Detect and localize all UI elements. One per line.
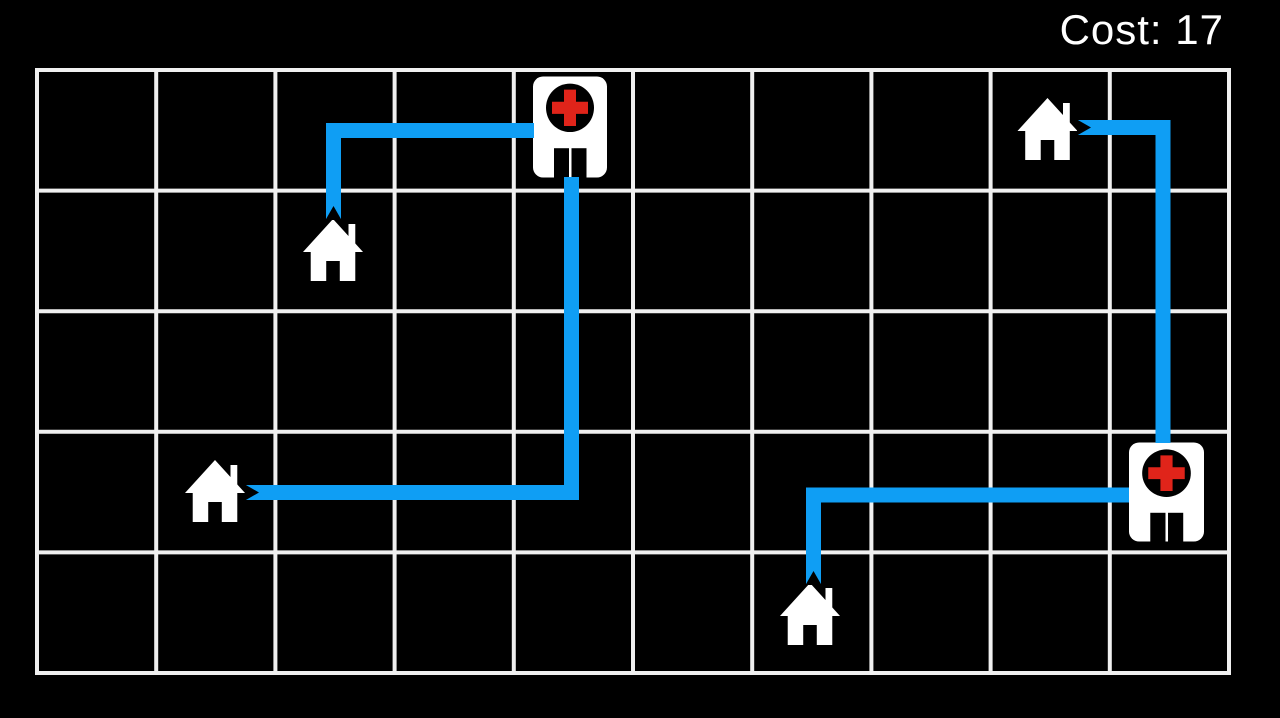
game-board: Cost: 17	[0, 0, 1280, 718]
route-hospital-top-to-house-upper-left[interactable]	[334, 131, 535, 221]
hospital-door-left	[1150, 513, 1165, 542]
house-icon[interactable]	[303, 219, 363, 281]
house-door	[326, 261, 340, 281]
hospital-icon[interactable]	[533, 77, 607, 178]
cost-label: Cost: 17	[1060, 0, 1224, 60]
house-icon[interactable]	[185, 460, 245, 522]
hospital-icon[interactable]	[1129, 443, 1204, 542]
hospital-door-right	[1168, 513, 1183, 542]
house-door	[803, 625, 817, 645]
house-icon[interactable]	[780, 583, 840, 645]
hospital-door-right	[572, 148, 587, 177]
route-house-top-right-to-hospital-right[interactable]	[1077, 128, 1163, 444]
hospital-door-left	[554, 148, 569, 177]
route-hospital-top-to-house-mid-left[interactable]	[245, 177, 572, 493]
grid-canvas[interactable]	[0, 0, 1280, 718]
house-door	[1041, 140, 1055, 160]
house-door	[208, 502, 222, 522]
route-hospital-right-to-house-bottom[interactable]	[814, 495, 1130, 585]
house-icon[interactable]	[1017, 98, 1077, 160]
